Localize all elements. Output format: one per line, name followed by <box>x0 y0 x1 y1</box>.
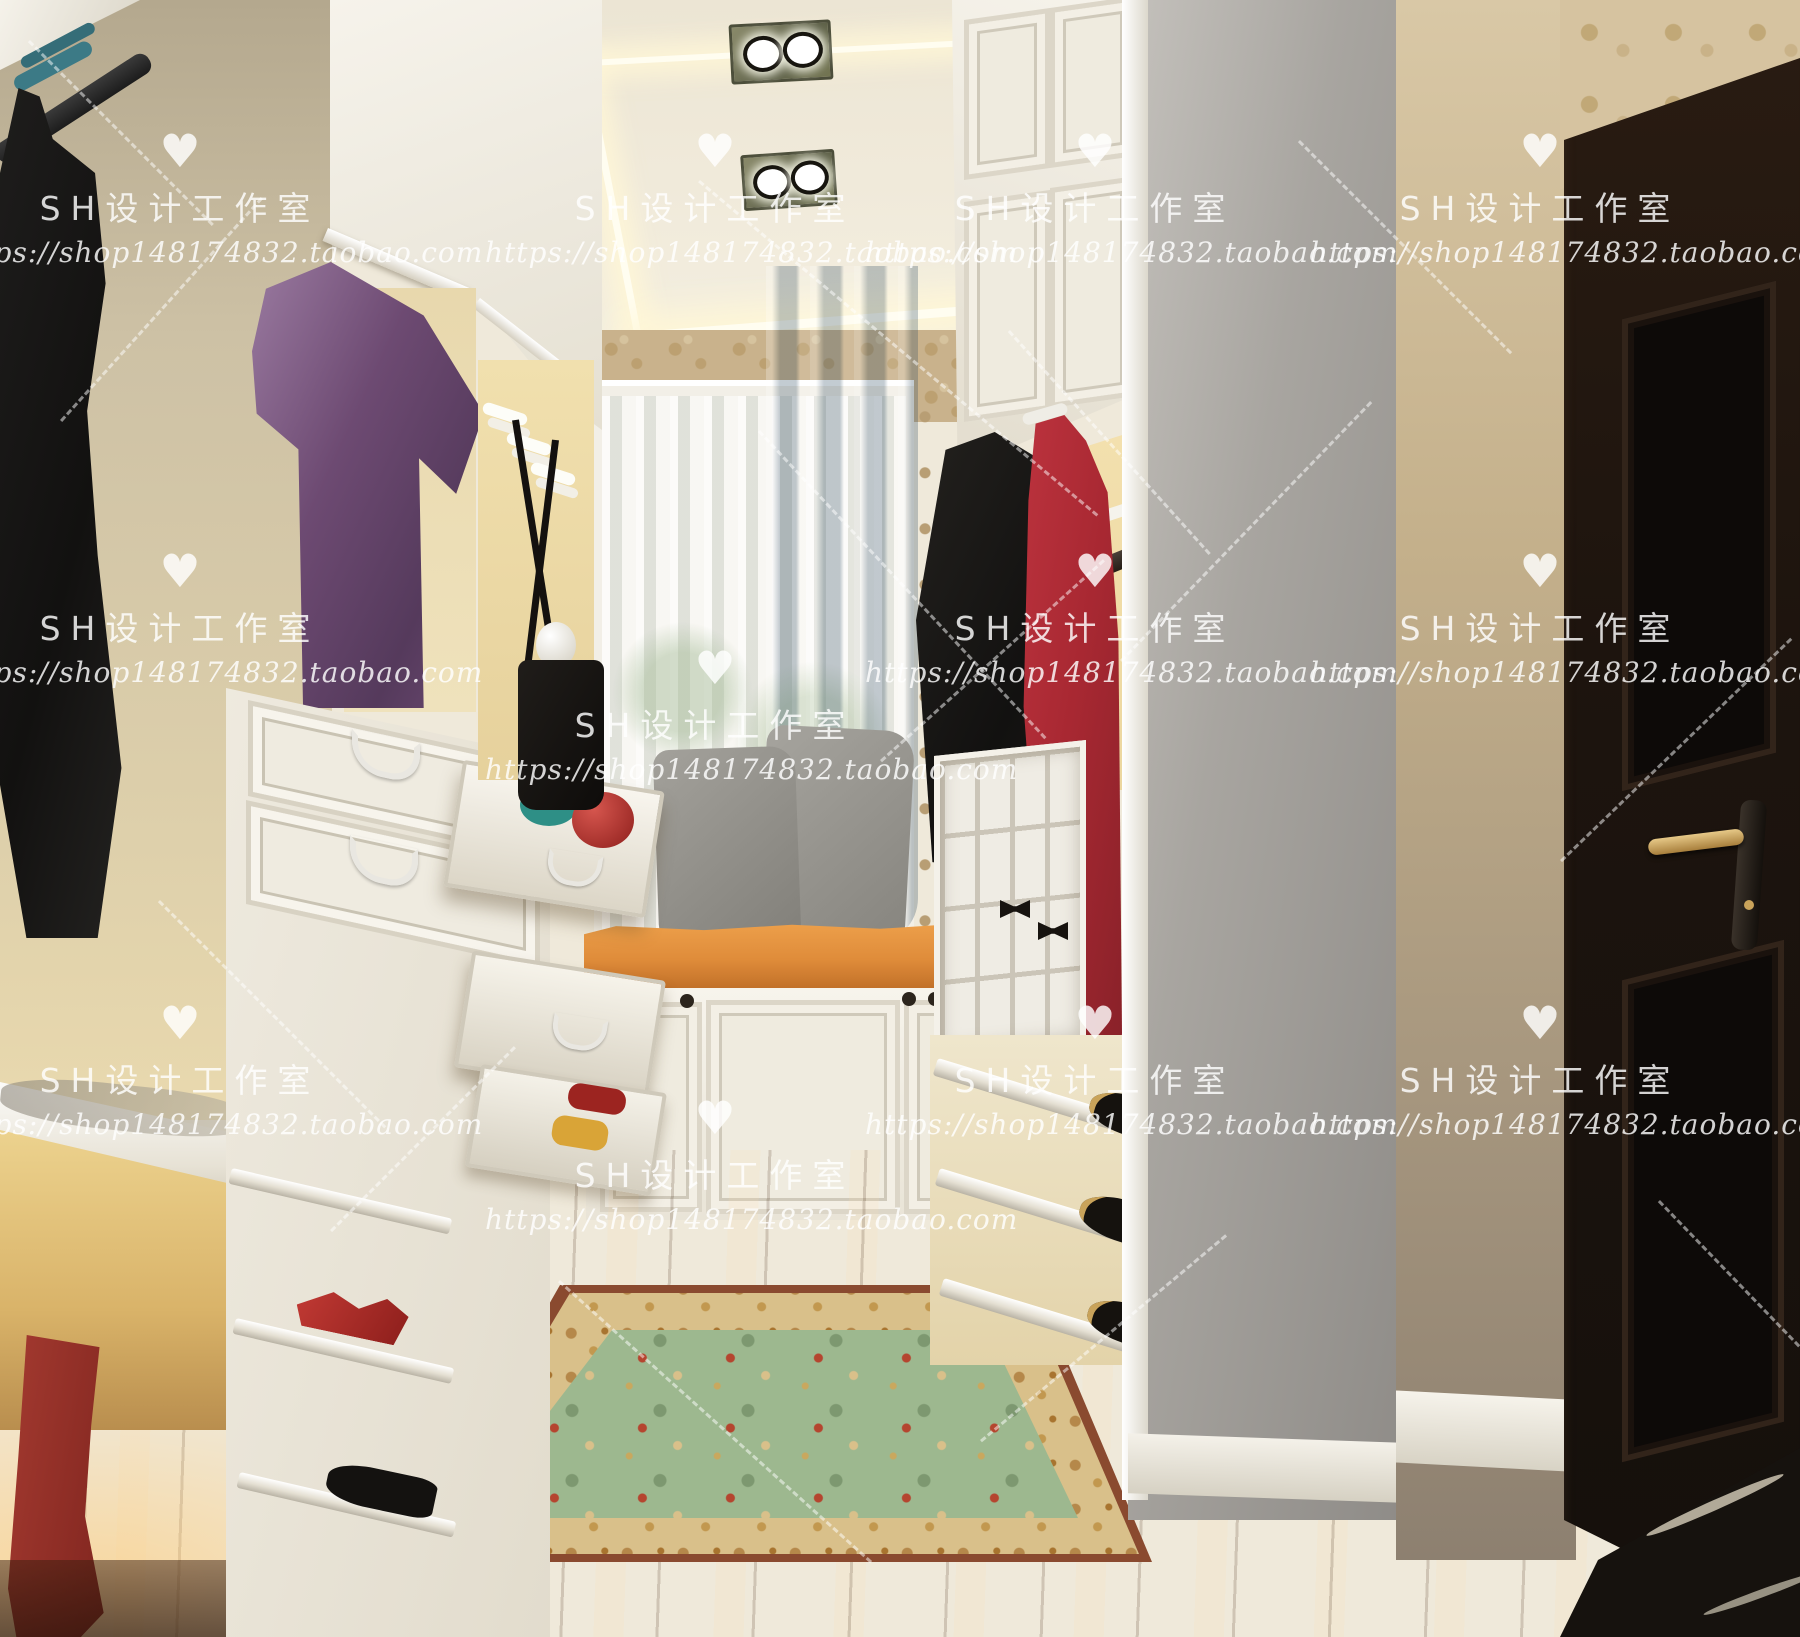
baseboard-right <box>1128 1433 1400 1502</box>
door-keyhole <box>1744 900 1754 910</box>
pillow-front <box>653 746 802 943</box>
black-handbag <box>518 660 604 810</box>
ceiling-spotlight-fixture <box>728 19 833 84</box>
right-upper-door <box>964 8 1050 180</box>
hall-baseboard <box>1396 1390 1568 1471</box>
spotlight-bulb <box>782 31 824 69</box>
seat-cabinet-knob <box>680 994 694 1008</box>
closet-render-canvas: ♥ SH设计工作室 https://shop148174832.taobao.c… <box>0 0 1800 1637</box>
spotlight-bulb <box>742 35 784 73</box>
spotlight-bulb <box>752 164 792 201</box>
door-panel <box>1622 940 1784 1462</box>
spotlight-bulb <box>790 159 830 196</box>
cube-organizer <box>934 740 1086 1058</box>
seat-cabinet-knob <box>902 992 916 1006</box>
wardrobe-edge-strip <box>1122 0 1148 1500</box>
door-panel <box>1622 281 1776 791</box>
hall-wallpaper-texture <box>1396 0 1576 1100</box>
wardrobe-side-panel <box>1128 0 1398 1520</box>
right-upper-door <box>964 190 1050 422</box>
ceiling-spotlight-fixture <box>740 149 838 211</box>
